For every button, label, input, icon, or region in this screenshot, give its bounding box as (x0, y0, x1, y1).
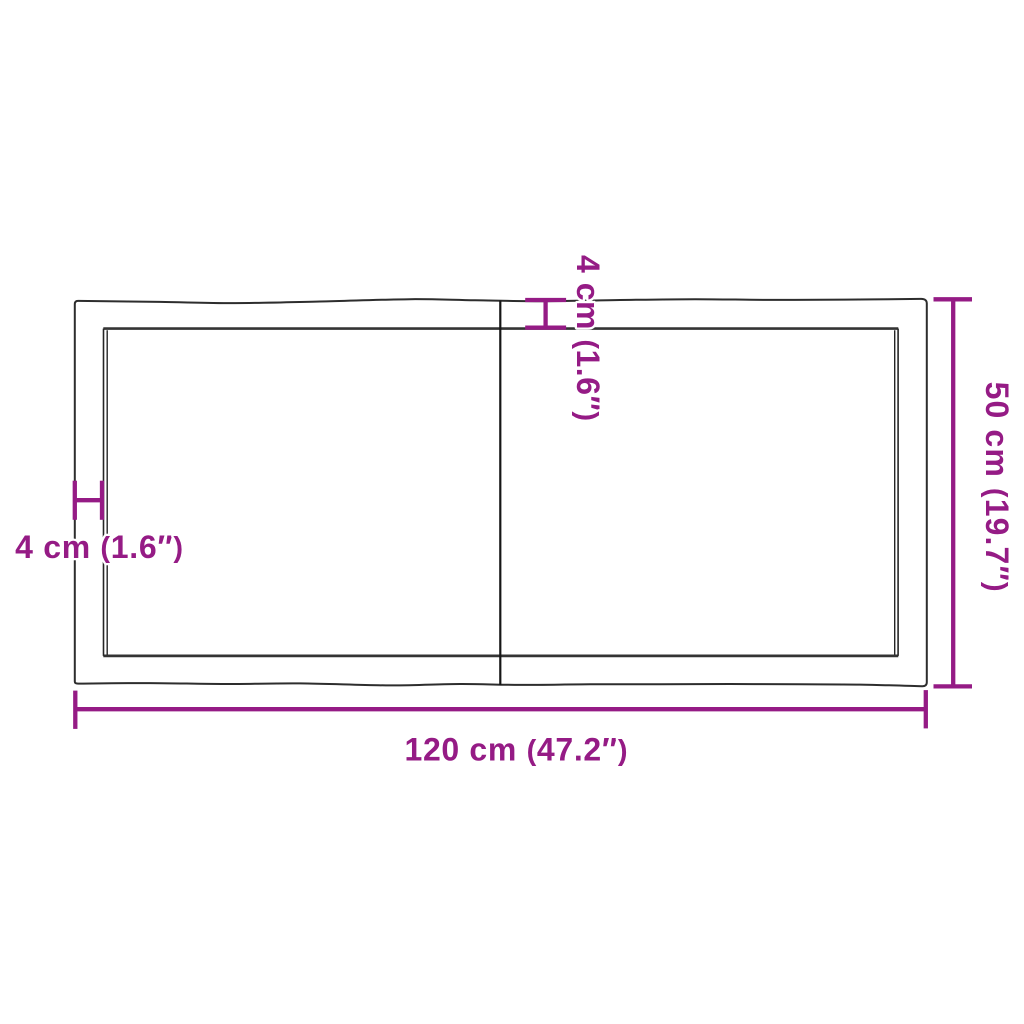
svg-text:120 cm (47.2″): 120 cm (47.2″) (405, 732, 628, 768)
svg-text:4 cm (1.6″): 4 cm (1.6″) (570, 255, 606, 421)
svg-text:4 cm (1.6″): 4 cm (1.6″) (15, 529, 183, 565)
svg-text:50 cm (19.7″): 50 cm (19.7″) (979, 382, 1015, 592)
